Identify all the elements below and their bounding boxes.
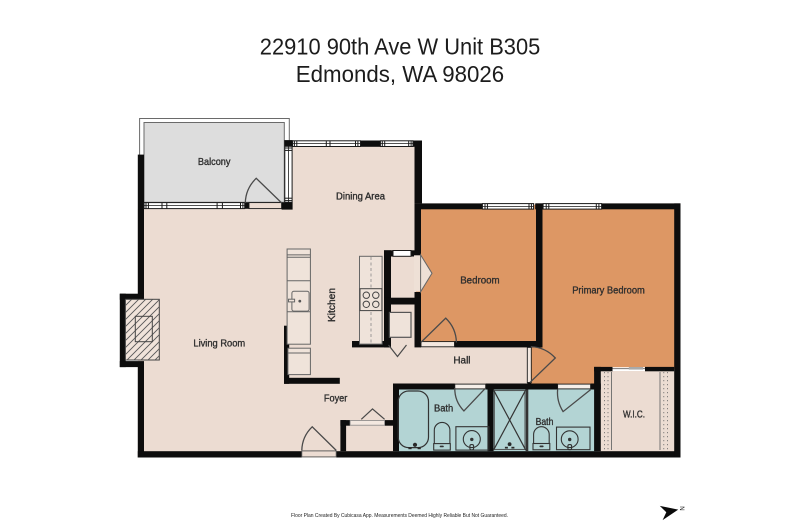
svg-text:Dining Area: Dining Area bbox=[336, 192, 385, 203]
svg-text:22910 90th Ave W Unit B305: 22910 90th Ave W Unit B305 bbox=[260, 34, 541, 60]
svg-text:W.I.C.: W.I.C. bbox=[623, 409, 645, 420]
svg-text:Floor Plan Created By Cubicasa: Floor Plan Created By Cubicasa App. Meas… bbox=[291, 513, 508, 519]
svg-text:Balcony: Balcony bbox=[198, 157, 231, 168]
svg-text:Bedroom: Bedroom bbox=[460, 276, 499, 287]
svg-text:Bath: Bath bbox=[536, 417, 554, 428]
svg-text:N: N bbox=[678, 506, 684, 510]
svg-text:Living Room: Living Room bbox=[193, 339, 245, 350]
svg-text:Primary Bedroom: Primary Bedroom bbox=[572, 286, 645, 297]
svg-text:Kitchen: Kitchen bbox=[327, 288, 338, 322]
svg-text:Foyer: Foyer bbox=[324, 393, 348, 404]
svg-text:Bath: Bath bbox=[434, 403, 453, 414]
svg-text:Hall: Hall bbox=[453, 356, 470, 367]
svg-text:Edmonds, WA 98026: Edmonds, WA 98026 bbox=[296, 61, 504, 87]
